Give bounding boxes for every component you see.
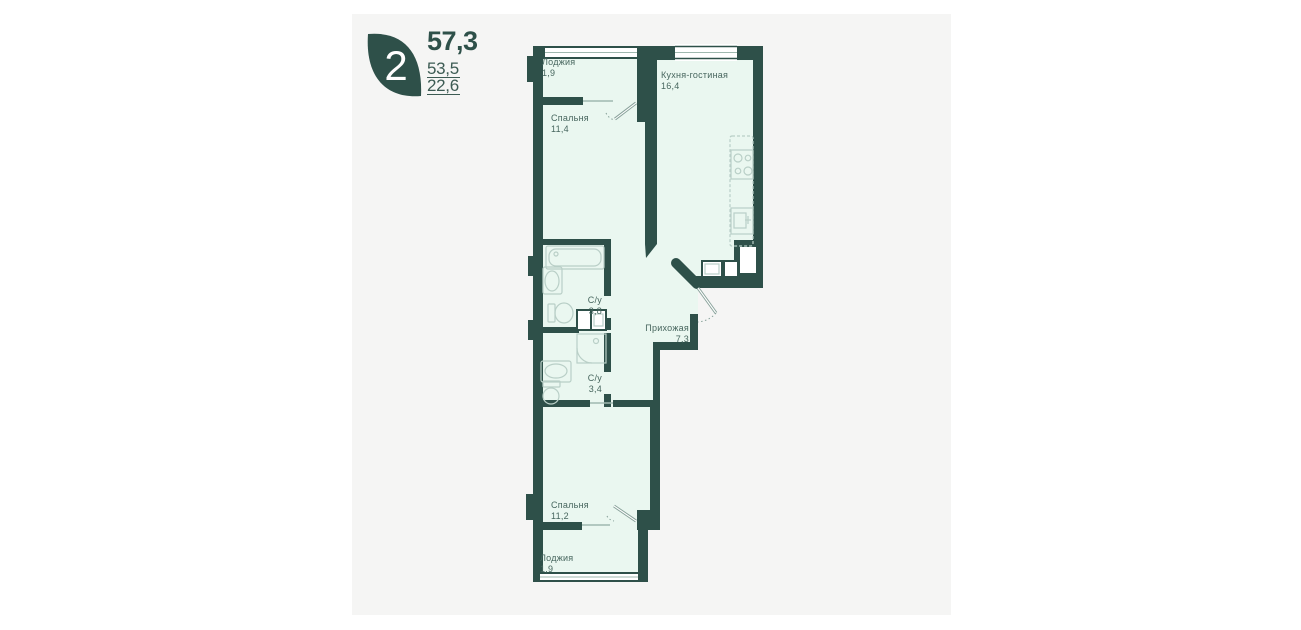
room-area-hallway: 7,3 xyxy=(676,334,689,344)
room-area-bath-top: 3,8 xyxy=(589,306,602,316)
room-area-kitchen: 16,4 xyxy=(661,81,680,91)
room-area-loggia-bottom: 1,9 xyxy=(540,564,553,574)
room-label-hallway: Прихожая xyxy=(645,323,689,333)
room-label-kitchen: Кухня-гостиная xyxy=(661,70,728,80)
floorplan-page: 2 57,3 53,5 22,6 xyxy=(0,0,1301,630)
room-area-bedroom-top: 11,4 xyxy=(551,124,569,134)
rooms-area: 22,6 xyxy=(427,78,460,95)
room-label-loggia-top: Лоджия xyxy=(542,57,575,67)
room-label-loggia-bottom: Лоджия xyxy=(540,553,573,563)
room-area-bath-bottom: 3,4 xyxy=(589,384,602,394)
area-figures: 57,3 53,5 22,6 xyxy=(427,28,478,95)
floorplan-drawing: Лоджия 1,9 Спальня 11,4 Кухня-гостиная 1… xyxy=(520,40,780,590)
hall-cabinets xyxy=(702,261,738,277)
room-label-bath-bottom: С/у xyxy=(588,373,603,383)
room-label-bath-top: С/у xyxy=(588,295,603,305)
room-area-bedroom-bottom: 11,2 xyxy=(551,511,569,521)
rooms-count: 2 xyxy=(384,42,407,89)
room-area-loggia-top: 1,9 xyxy=(542,68,555,78)
room-label-bedroom-top: Спальня xyxy=(551,113,589,123)
room-label-bedroom-bottom: Спальня xyxy=(551,500,589,510)
total-area: 57,3 xyxy=(427,28,478,55)
